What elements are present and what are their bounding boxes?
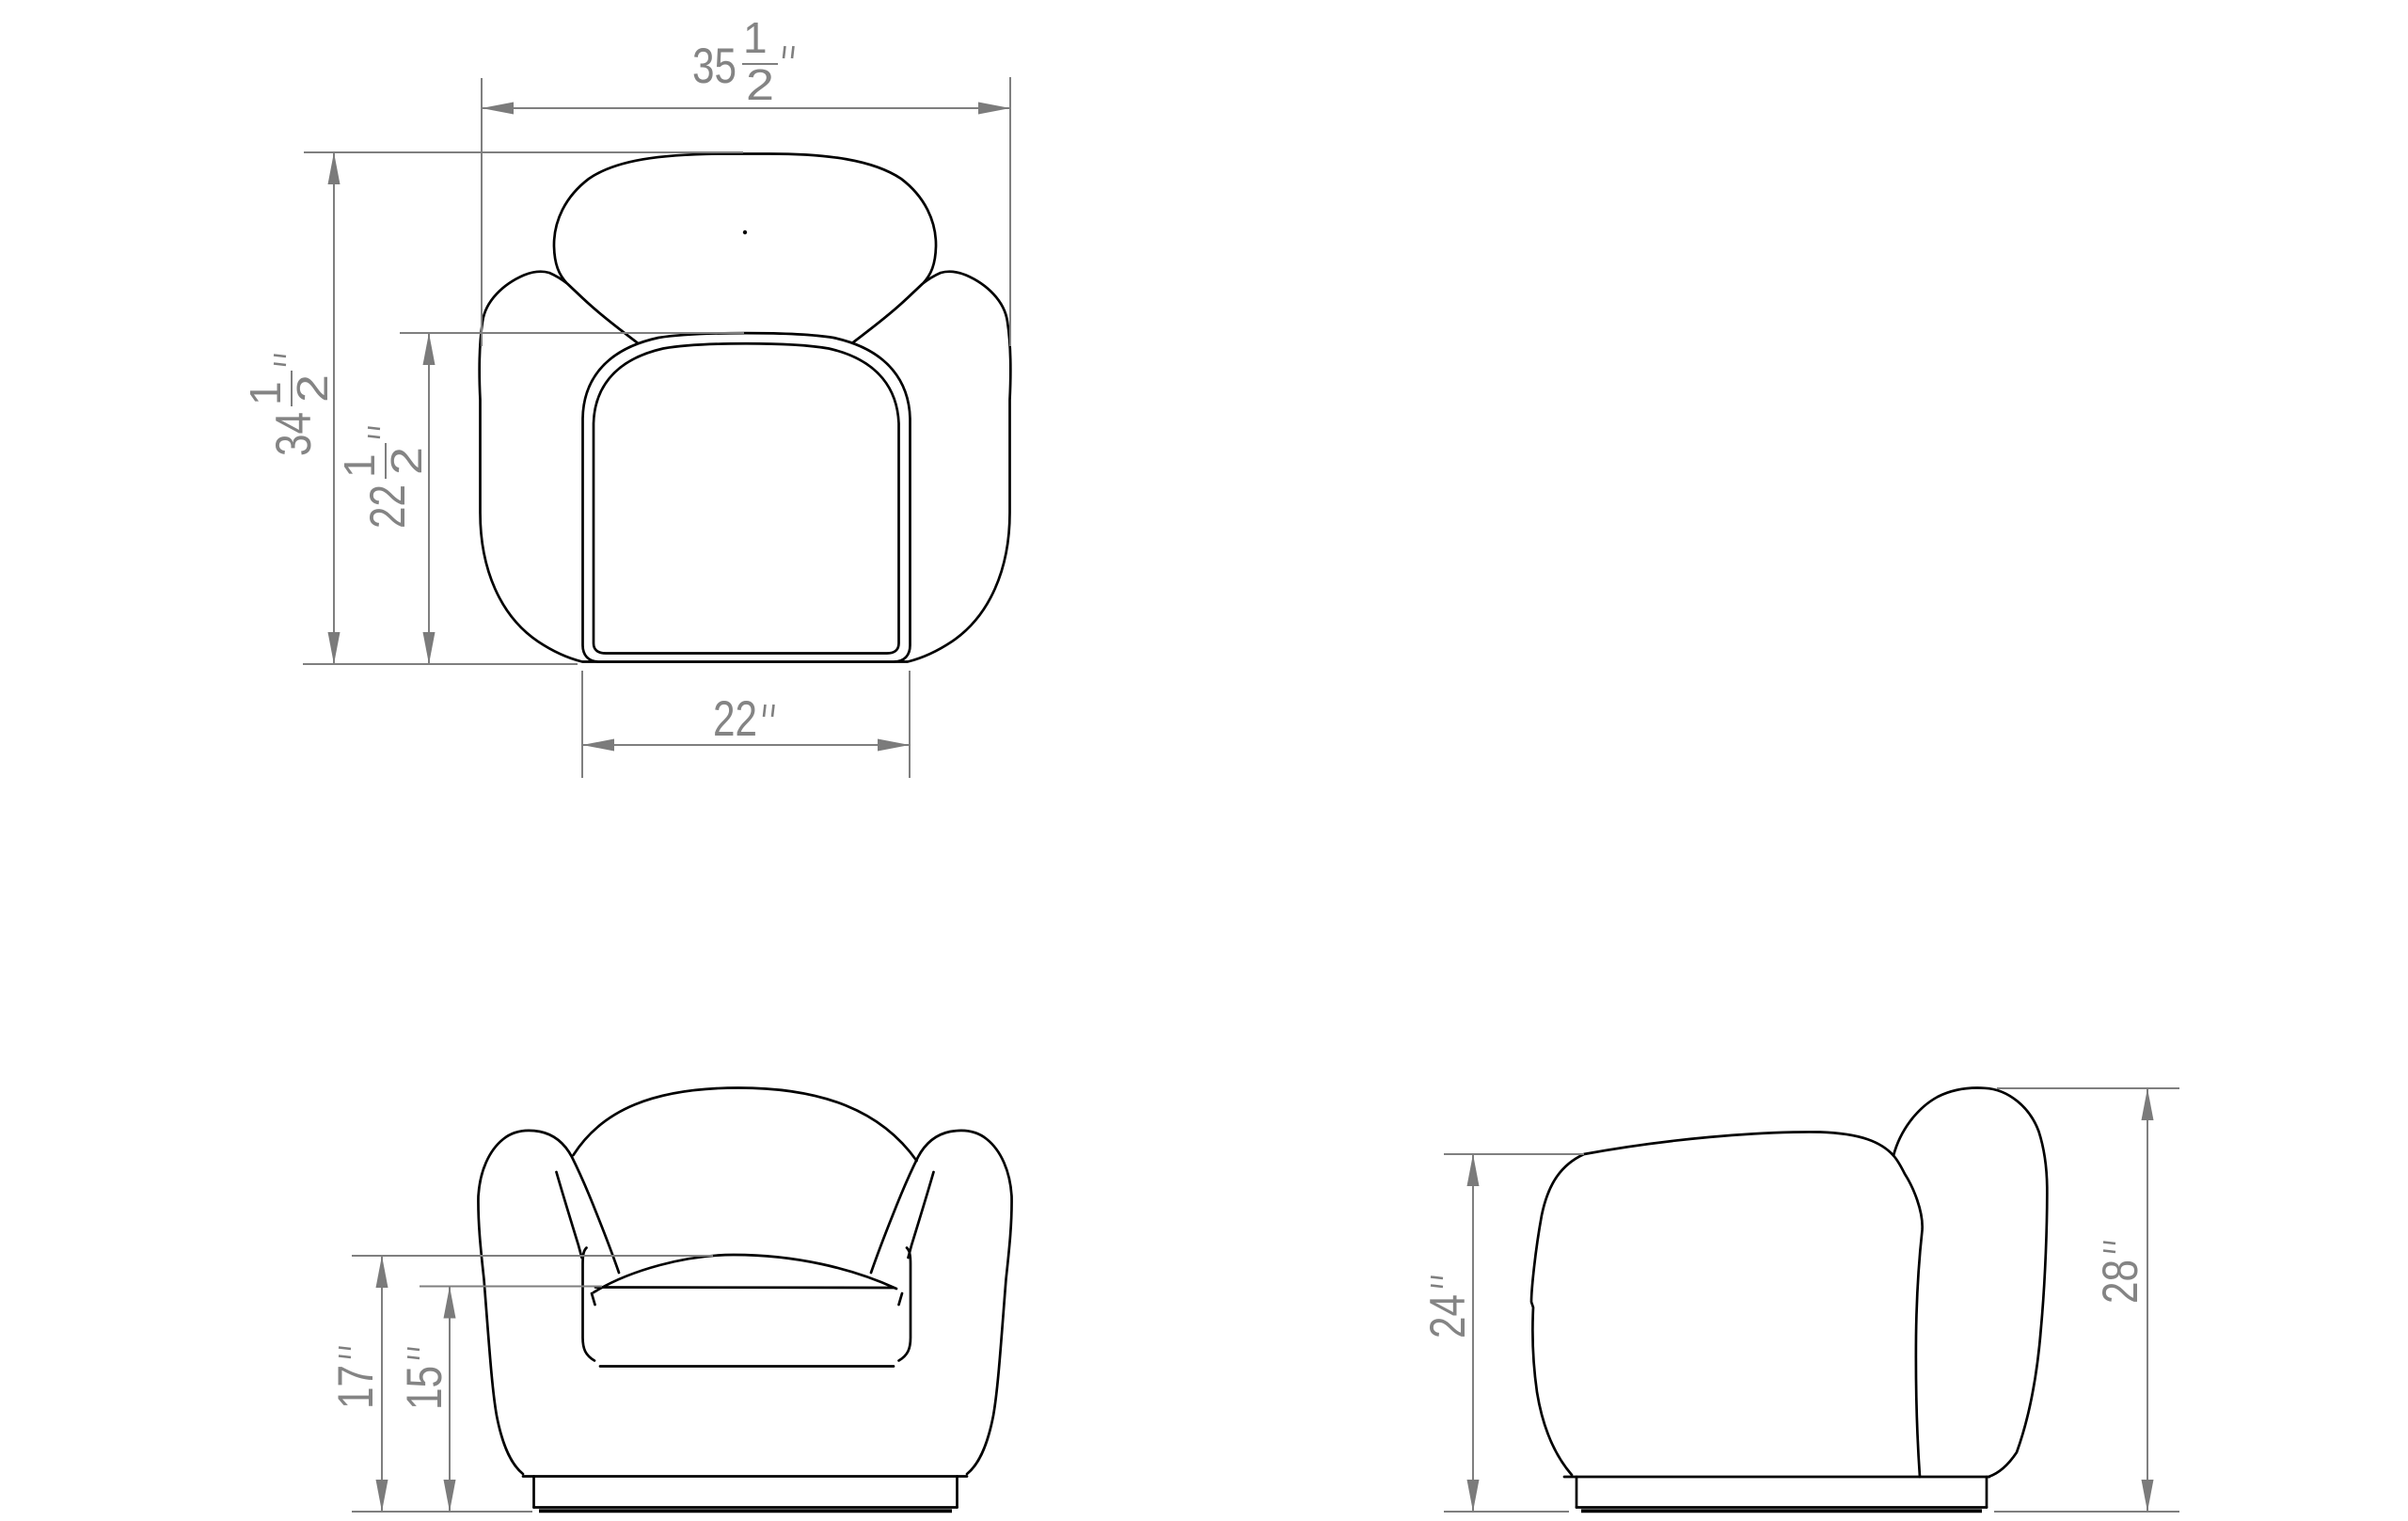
svg-text:34: 34 bbox=[266, 412, 322, 456]
svg-text:22: 22 bbox=[360, 484, 416, 529]
svg-text:28: 28 bbox=[2093, 1260, 2148, 1304]
svg-text:1: 1 bbox=[335, 453, 384, 478]
svg-text:15: 15 bbox=[397, 1366, 452, 1410]
svg-text:2: 2 bbox=[288, 374, 337, 403]
svg-text:1: 1 bbox=[241, 381, 290, 405]
svg-text:2: 2 bbox=[746, 60, 774, 109]
svg-text:1: 1 bbox=[743, 13, 768, 62]
svg-text:17: 17 bbox=[328, 1365, 384, 1409]
svg-text:35: 35 bbox=[692, 39, 737, 94]
svg-text:2: 2 bbox=[382, 447, 431, 475]
svg-text:24: 24 bbox=[1420, 1294, 1476, 1339]
svg-text:22: 22 bbox=[713, 691, 757, 747]
